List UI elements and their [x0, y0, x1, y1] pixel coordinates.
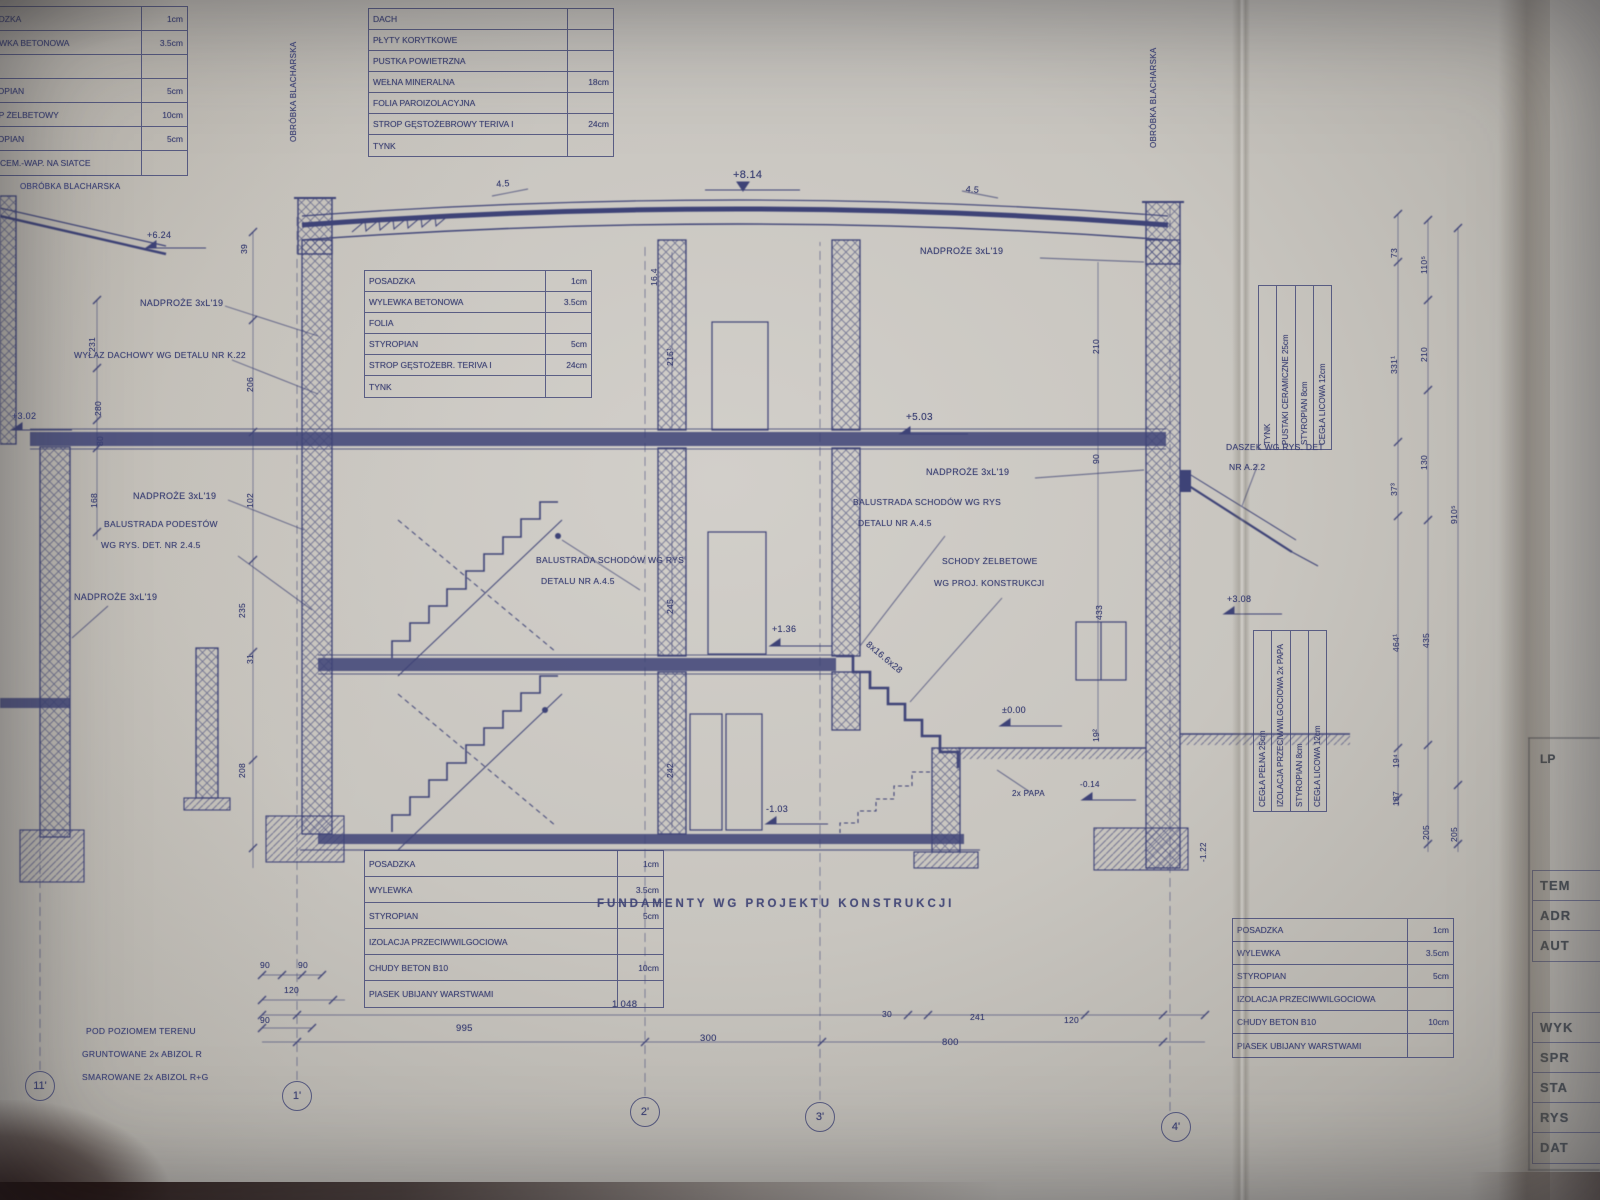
axis-label: 3' — [816, 1111, 824, 1123]
spec-layer-name: CEGŁA LICOWA 12cm — [1309, 631, 1326, 811]
annotation-label: DASZEK WG RYS. DET — [1226, 443, 1324, 452]
dimension-label: 331¹ — [1390, 356, 1399, 374]
spec-layer-name: POSADZKA — [1233, 924, 1407, 936]
dimension-label: 241 — [970, 1013, 985, 1022]
axis-label: 2' — [641, 1106, 649, 1118]
annotation-label: 4.5 — [496, 179, 510, 189]
spec-layer-thickness: 5cm — [141, 79, 187, 102]
spec-layer-name: WYLEWKA BETONOWA — [0, 37, 141, 49]
titleblock-row-autor: AUT — [1533, 931, 1600, 961]
spec-table-ground-floor: POSADZKA1cmWYLEWKA3.5cmSTYROPIAN5cmIZOLA… — [364, 850, 664, 1008]
spec-layer-thickness — [141, 151, 187, 175]
dimension-label: 187 — [1392, 791, 1401, 806]
dimension-label: 19⁴ — [1392, 754, 1401, 768]
spec-layer-thickness: 1cm — [141, 7, 187, 30]
spec-layer-name: PUSTKA POWIETRZNA — [369, 55, 567, 67]
spec-row: POSADZKA1cm — [365, 271, 591, 292]
spec-table-ground-right: POSADZKA1cmWYLEWKA3.5cmSTYROPIAN5cmIZOLA… — [1232, 918, 1454, 1058]
dimension-label: 280 — [94, 401, 103, 416]
dimension-label: 800 — [942, 1038, 959, 1048]
annotation-label: -1.03 — [766, 805, 788, 814]
dimension-label: 995 — [456, 1024, 473, 1034]
spec-layer-thickness — [567, 135, 613, 156]
titleblock-row-rys: RYS — [1533, 1103, 1600, 1133]
titleblock-row-sprawdzil: SPR — [1533, 1043, 1600, 1073]
spec-layer-name: STROP ŻELBETOWY — [0, 109, 141, 121]
spec-row: PŁYTY KORYTKOWE — [369, 30, 613, 51]
spec-layer-name: IZOLACJA PRZECIWWILGOCIOWA — [1233, 993, 1407, 1005]
spec-row: STROP ŻELBETOWY10cm — [0, 103, 187, 127]
dimension-label: 16.4 — [650, 268, 659, 286]
spec-layer-name: WEŁNA MINERALNA — [369, 76, 567, 88]
dimension-label: 80 — [96, 436, 105, 446]
spec-row: FOLIA — [0, 55, 187, 79]
spec-layer-name: POSADZKA — [365, 858, 617, 870]
annotation-label: NADPROŻE 3xL'19 — [133, 492, 216, 501]
spec-layer-thickness: 18cm — [567, 72, 613, 92]
annotation-label: +8.14 — [733, 170, 762, 181]
spec-layer-name: POSADZKA — [365, 275, 545, 287]
spec-layer-thickness: 10cm — [617, 955, 663, 980]
spec-layer-name: CHUDY BETON B10 — [1233, 1016, 1407, 1028]
titleblock-lp: LP — [1540, 752, 1555, 766]
spec-layer-thickness: 24cm — [567, 114, 613, 134]
spec-row: IZOLACJA PRZECIWWILGOCIOWA — [365, 929, 663, 955]
spec-layer-thickness — [141, 55, 187, 78]
spec-table-top-left: POSADZKA1cmWYLEWKA BETONOWA3.5cmFOLIASTY… — [0, 6, 188, 176]
spec-layer-thickness — [1407, 988, 1453, 1010]
annotation-label: DETALU NR A.4.5 — [541, 577, 615, 586]
spec-row: CHUDY BETON B1010cm — [365, 955, 663, 981]
spec-table-wall-lower: CEGŁA PEŁNA 25cmIZOLACJA PRZECIWWILGOCIO… — [1253, 630, 1327, 812]
dimension-label: 110⁵ — [1420, 256, 1429, 274]
dimension-label: 31 — [246, 654, 255, 664]
dimension-label: 245 — [666, 599, 675, 614]
spec-layer-name: WYLEWKA — [365, 884, 617, 896]
spec-row: IZOLACJA PRZECIWWILGOCIOWA — [1233, 988, 1453, 1011]
annotation-label: BALUSTRADA SCHODÓW WG RYS — [536, 556, 684, 565]
annotation-label: ±0.00 — [1002, 706, 1026, 715]
spec-layer-thickness: 5cm — [545, 334, 591, 354]
spec-row: STYROPIAN5cm — [0, 127, 187, 151]
spec-layer-thickness: 3.5cm — [141, 31, 187, 54]
annotation-label: NR A.2.2 — [1229, 463, 1265, 472]
dimension-label: 210 — [1420, 347, 1429, 362]
spec-layer-name: DACH — [369, 13, 567, 25]
spec-layer-name: CEGŁA LICOWA 12cm — [1314, 286, 1331, 449]
annotation-label: 2x PAPA — [1012, 790, 1045, 798]
spec-layer-name: STYROPIAN — [1233, 970, 1407, 982]
spec-layer-name: PIASEK UBIJANY WARSTWAMI — [365, 988, 617, 1000]
dimension-label: 464¹ — [1392, 634, 1401, 652]
spec-row: PIASEK UBIJANY WARSTWAMI — [1233, 1034, 1453, 1057]
spec-layer-thickness — [567, 9, 613, 29]
annotation-label: NADPROŻE 3xL'19 — [926, 468, 1009, 477]
axis-label: 11' — [33, 1080, 47, 1092]
spec-row: FOLIA PAROIZOLACYJNA — [369, 93, 613, 114]
annotation-label: BALUSTRADA PODESTÓW — [104, 520, 218, 529]
spec-layer-name: PŁYTY KORYTKOWE — [369, 34, 567, 46]
dimension-label: 1 048 — [612, 1000, 637, 1010]
spec-layer-name: PIASEK UBIJANY WARSTWAMI — [1233, 1040, 1407, 1052]
spec-row: FOLIA — [365, 313, 591, 334]
spec-row: POSADZKA1cm — [1233, 919, 1453, 942]
spec-layer-name: STYROPIAN 8cm — [1291, 631, 1309, 811]
spec-row: DACH — [369, 9, 613, 30]
spec-layer-thickness — [617, 929, 663, 954]
dimension-label: 433 — [1095, 605, 1104, 620]
spec-layer-name: FOLIA — [365, 317, 545, 329]
spec-table-wall-upper: TYNKPUSTAKI CERAMICZNE 25cmSTYROPIAN 8cm… — [1258, 285, 1332, 450]
spec-layer-thickness: 10cm — [1407, 1011, 1453, 1033]
annotation-label: +6.24 — [147, 231, 171, 240]
spec-layer-thickness: 1cm — [1407, 919, 1453, 941]
dimension-label: 37³ — [1390, 483, 1399, 496]
annotation-label: -0.14 — [1080, 781, 1100, 789]
dimension-label: 120 — [284, 986, 299, 995]
spec-row: TYNK CEM.-WAP. NA SIATCE — [0, 151, 187, 175]
annotation-label: POD POZIOMEM TERENU — [86, 1027, 196, 1036]
spec-row: STROP GĘSTOŻEBR. TERIVA I24cm — [365, 355, 591, 376]
dimension-label: 120 — [1064, 1016, 1079, 1025]
annotation-label: +1.36 — [772, 625, 796, 634]
dimension-label: 210 — [1092, 339, 1101, 354]
spec-layer-name: STYROPIAN 8cm — [1296, 286, 1314, 449]
spec-layer-name: STROP GĘSTOŻEBROWY TERIVA I — [369, 118, 567, 130]
dimension-label: 231 — [88, 337, 97, 352]
annotation-label: BALUSTRADA SCHODÓW WG RYS — [853, 498, 1001, 507]
spec-layer-name: CEGŁA PEŁNA 25cm — [1254, 631, 1272, 811]
axis-bubble-3: 3' — [805, 1102, 835, 1132]
spec-layer-thickness: 10cm — [141, 103, 187, 126]
axis-label: 4' — [1172, 1121, 1180, 1133]
spec-layer-name: PUSTAKI CERAMICZNE 25cm — [1277, 286, 1295, 449]
annotation-label: 4.5 — [965, 185, 979, 195]
spec-layer-thickness — [1407, 1034, 1453, 1057]
spec-layer-thickness — [567, 93, 613, 113]
axis-bubble-11: 11' — [25, 1071, 55, 1101]
spec-layer-name: TYNK CEM.-WAP. NA SIATCE — [0, 157, 141, 169]
annotation-label: OBRÓBKA BLACHARSKA — [20, 183, 121, 191]
axis-bubble-2: 2' — [630, 1097, 660, 1127]
dimension-label: 242 — [666, 763, 675, 778]
dimension-label: 208 — [238, 763, 247, 778]
spec-layer-name: STROP GĘSTOŻEBR. TERIVA I — [365, 359, 545, 371]
annotation-label: -1.22 — [1200, 842, 1208, 862]
spec-layer-thickness — [545, 313, 591, 333]
dimension-label: 130 — [1420, 455, 1429, 470]
spec-row: STYROPIAN5cm — [1233, 965, 1453, 988]
spec-layer-thickness: 5cm — [1407, 965, 1453, 987]
spec-row: PUSTKA POWIETRZNA — [369, 51, 613, 72]
dimension-label: 90 — [1092, 454, 1101, 464]
annotation-label: WG PROJ. KONSTRUKCJI — [934, 579, 1044, 588]
spec-row: POSADZKA1cm — [0, 7, 187, 31]
dimension-label: 39 — [240, 244, 249, 254]
dimension-label: 73 — [1390, 248, 1399, 258]
spec-layer-thickness: 3.5cm — [1407, 942, 1453, 964]
annotation-label: OBRÓBKA BLACHARSKA — [1150, 47, 1158, 148]
spec-layer-name: STYROPIAN — [0, 133, 141, 145]
dimension-label: 90 — [260, 1016, 270, 1025]
spec-row: TYNK — [369, 135, 613, 156]
spec-layer-thickness: 5cm — [141, 127, 187, 150]
spec-layer-name: STYROPIAN — [365, 910, 617, 922]
annotation-label: SMAROWANE 2x ABIZOL R+G — [82, 1073, 208, 1082]
spec-layer-thickness: 3.5cm — [545, 292, 591, 312]
annotation-label: WYŁAZ DACHOWY WG DETALU NR K.22 — [74, 351, 246, 360]
titleblock-row-wykonal: WYK — [1533, 1013, 1600, 1043]
dimension-label: 30 — [882, 1010, 892, 1019]
spec-row: STYROPIAN5cm — [0, 79, 187, 103]
annotation-label: +3.08 — [1227, 595, 1251, 604]
spec-layer-name: STYROPIAN — [0, 85, 141, 97]
spec-row: WEŁNA MINERALNA18cm — [369, 72, 613, 93]
dimension-label: 435 — [1422, 633, 1431, 648]
spec-layer-name: WYLEWKA BETONOWA — [365, 296, 545, 308]
titleblock-row-data: DAT — [1533, 1133, 1600, 1163]
dimension-label: 19² — [1092, 729, 1101, 742]
annotation-label: OBRÓBKA BLACHARSKA — [290, 41, 298, 142]
spec-table-floor1: POSADZKA1cmWYLEWKA BETONOWA3.5cmFOLIASTY… — [364, 270, 592, 398]
annotation-label: GRUNTOWANE 2x ABIZOL R — [82, 1050, 202, 1059]
spec-row: WYLEWKA3.5cm — [1233, 942, 1453, 965]
titleblock-row-adres: ADR — [1533, 901, 1600, 931]
dimension-label: 910⁵ — [1450, 505, 1459, 524]
dimension-label: 168 — [90, 493, 99, 508]
spec-layer-thickness: 1cm — [545, 271, 591, 291]
dimension-label: 300 — [700, 1034, 717, 1044]
spec-layer-name: IZOLACJA PRZECIWWILGOCIOWA — [365, 936, 617, 948]
titleblock-row-temat: TEM — [1533, 871, 1600, 901]
annotation-label: WG RYS. DET. NR 2.4.5 — [101, 541, 201, 550]
spec-layer-thickness — [545, 376, 591, 397]
titleblock-upper: TEM ADR AUT — [1532, 870, 1600, 962]
spec-layer-name: CHUDY BETON B10 — [365, 962, 617, 974]
dimension-label: 90 — [298, 961, 308, 970]
spec-layer-name: FOLIA — [0, 61, 141, 73]
annotation-label: +3.02 — [12, 412, 36, 421]
dimension-label: 205 — [1450, 827, 1459, 842]
titleblock-row-stadium: STA — [1533, 1073, 1600, 1103]
spec-layer-thickness: 1cm — [617, 851, 663, 876]
spec-row: STYROPIAN5cm — [365, 334, 591, 355]
annotation-label: SCHODY ŻELBETOWE — [942, 557, 1038, 566]
annotation-label: FUNDAMENTY WG PROJEKTU KONSTRUKCJI — [597, 899, 954, 911]
dimension-label: 235 — [238, 603, 247, 618]
dimension-label: 215¹ — [666, 348, 675, 366]
spec-layer-name: TYNK — [1259, 286, 1277, 449]
spec-row: POSADZKA1cm — [365, 851, 663, 877]
spec-layer-name: TYNK — [365, 381, 545, 393]
spec-layer-name: FOLIA PAROIZOLACYJNA — [369, 97, 567, 109]
dimension-label: 206 — [246, 377, 255, 392]
axis-label: 1' — [293, 1090, 301, 1102]
spec-layer-name: STYROPIAN — [365, 338, 545, 350]
spec-layer-name: WYLEWKA — [1233, 947, 1407, 959]
dimension-label: 102 — [246, 493, 255, 508]
spec-row: CHUDY BETON B1010cm — [1233, 1011, 1453, 1034]
spec-row: STROP GĘSTOŻEBROWY TERIVA I24cm — [369, 114, 613, 135]
dimension-label: 205 — [1422, 825, 1431, 840]
annotation-label: NADPROŻE 3xL'19 — [74, 593, 157, 602]
spec-layer-thickness — [567, 51, 613, 71]
spec-layer-name: IZOLACJA PRZECIWWILGOCIOWA 2x PAPA — [1272, 631, 1290, 811]
spec-layer-name: POSADZKA — [0, 13, 141, 25]
spec-layer-name: TYNK — [369, 140, 567, 152]
spec-table-roof: DACHPŁYTY KORYTKOWEPUSTKA POWIETRZNAWEŁN… — [368, 8, 614, 157]
spec-row: WYLEWKA BETONOWA3.5cm — [365, 292, 591, 313]
axis-bubble-1: 1' — [282, 1081, 312, 1111]
titleblock-lower: WYK SPR STA RYS DAT — [1532, 1012, 1600, 1164]
annotation-label: NADPROŻE 3xL'19 — [140, 299, 223, 308]
annotation-label: NADPROŻE 3xL'19 — [920, 247, 1003, 256]
spec-layer-thickness — [567, 30, 613, 50]
dimension-label: 90 — [260, 961, 270, 970]
annotation-label: DETALU NR A.4.5 — [858, 519, 932, 528]
annotation-label: +5.03 — [906, 413, 933, 423]
axis-bubble-4: 4' — [1161, 1112, 1191, 1142]
spec-row: WYLEWKA BETONOWA3.5cm — [0, 31, 187, 55]
spec-layer-thickness: 24cm — [545, 355, 591, 375]
blueprint-photo: POSADZKA1cmWYLEWKA BETONOWA3.5cmFOLIASTY… — [0, 0, 1600, 1200]
spec-row: TYNK — [365, 376, 591, 397]
